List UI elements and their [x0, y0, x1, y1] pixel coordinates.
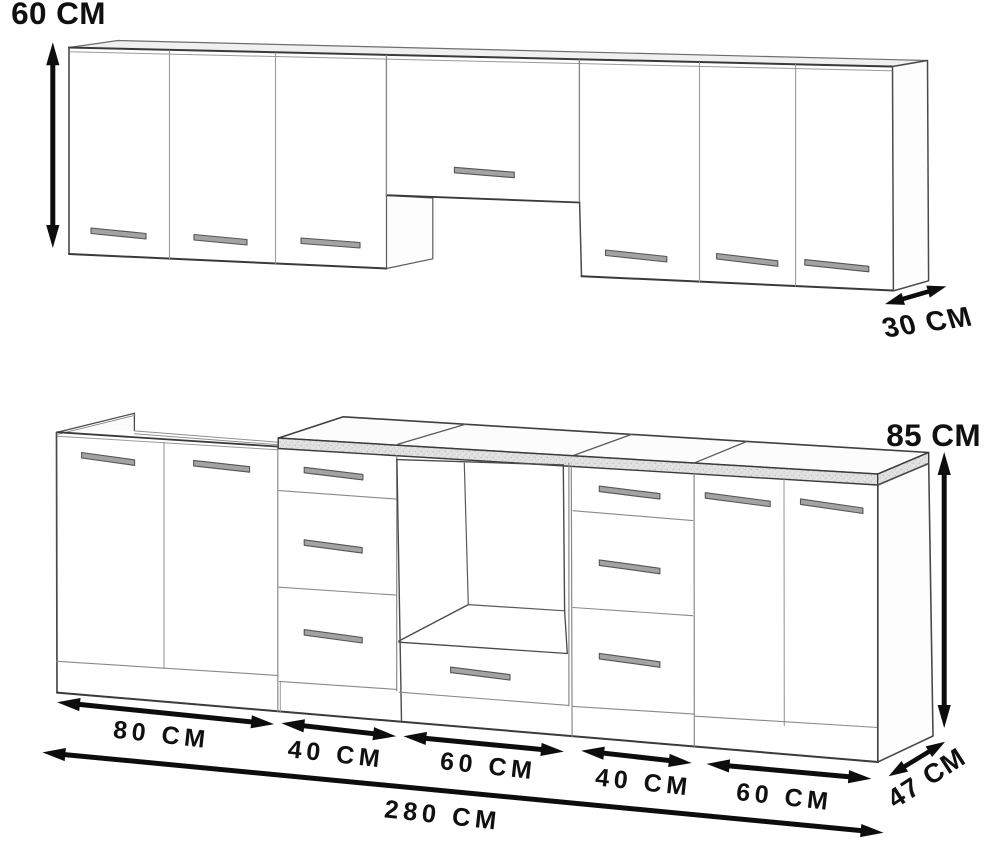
svg-text:60 CM: 60 CM [11, 0, 106, 31]
svg-text:85 CM: 85 CM [886, 417, 981, 453]
